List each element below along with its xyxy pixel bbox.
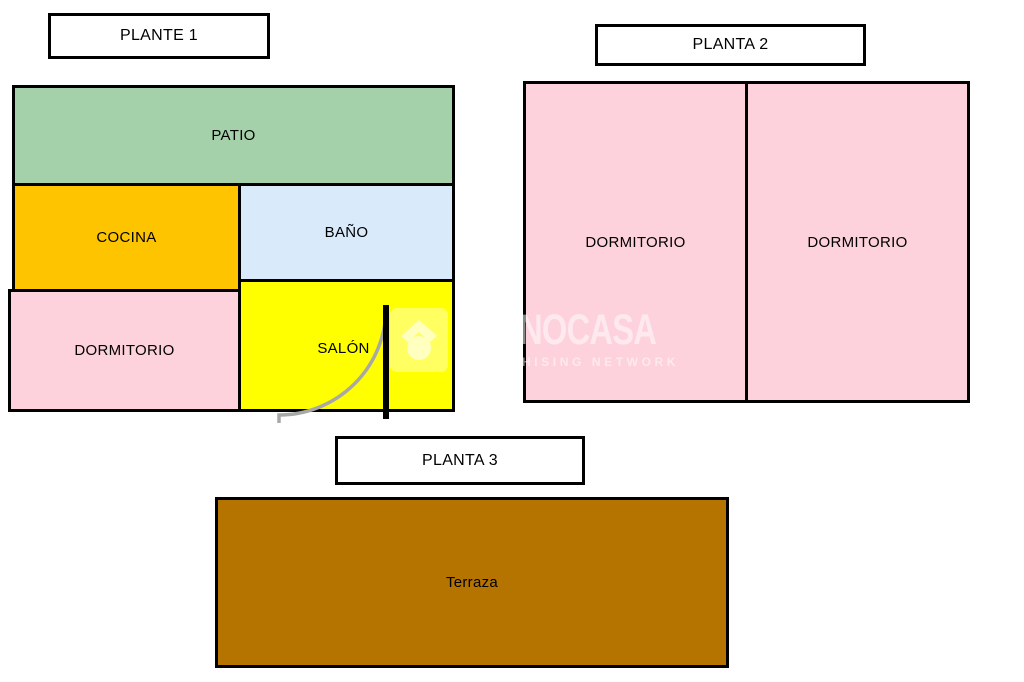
salon-door-jamb [383, 305, 389, 419]
room-patio: PATIO [12, 85, 455, 186]
room-cocina-label: COCINA [96, 229, 156, 246]
plan3-title: PLANTA 3 [422, 452, 498, 470]
room-bano: BAÑO [238, 183, 455, 282]
floor-plan-canvas: PLANTE 1 PATIO COCINA BAÑO DORMITORIO SA… [0, 0, 1024, 682]
plan2-title-box: PLANTA 2 [595, 24, 866, 66]
room-cocina: COCINA [12, 183, 241, 292]
room-dormitorio-plan1: DORMITORIO [8, 289, 241, 412]
room-dormitorio-plan2-left-label: DORMITORIO [585, 234, 685, 251]
room-bano-label: BAÑO [325, 224, 369, 241]
room-dormitorio-plan2-right-label: DORMITORIO [807, 234, 907, 251]
plan1-title: PLANTE 1 [120, 27, 198, 45]
plan2-title: PLANTA 2 [693, 36, 769, 54]
salon-door-swing-arc [276, 305, 389, 423]
room-terraza-label: Terraza [446, 574, 498, 591]
room-terraza: Terraza [215, 497, 729, 668]
plan3-title-box: PLANTA 3 [335, 436, 585, 485]
room-dormitorio-plan1-label: DORMITORIO [74, 342, 174, 359]
room-dormitorio-plan2-left: DORMITORIO [523, 81, 748, 403]
plan1-title-box: PLANTE 1 [48, 13, 270, 59]
room-patio-label: PATIO [211, 127, 255, 144]
room-dormitorio-plan2-right: DORMITORIO [745, 81, 970, 403]
